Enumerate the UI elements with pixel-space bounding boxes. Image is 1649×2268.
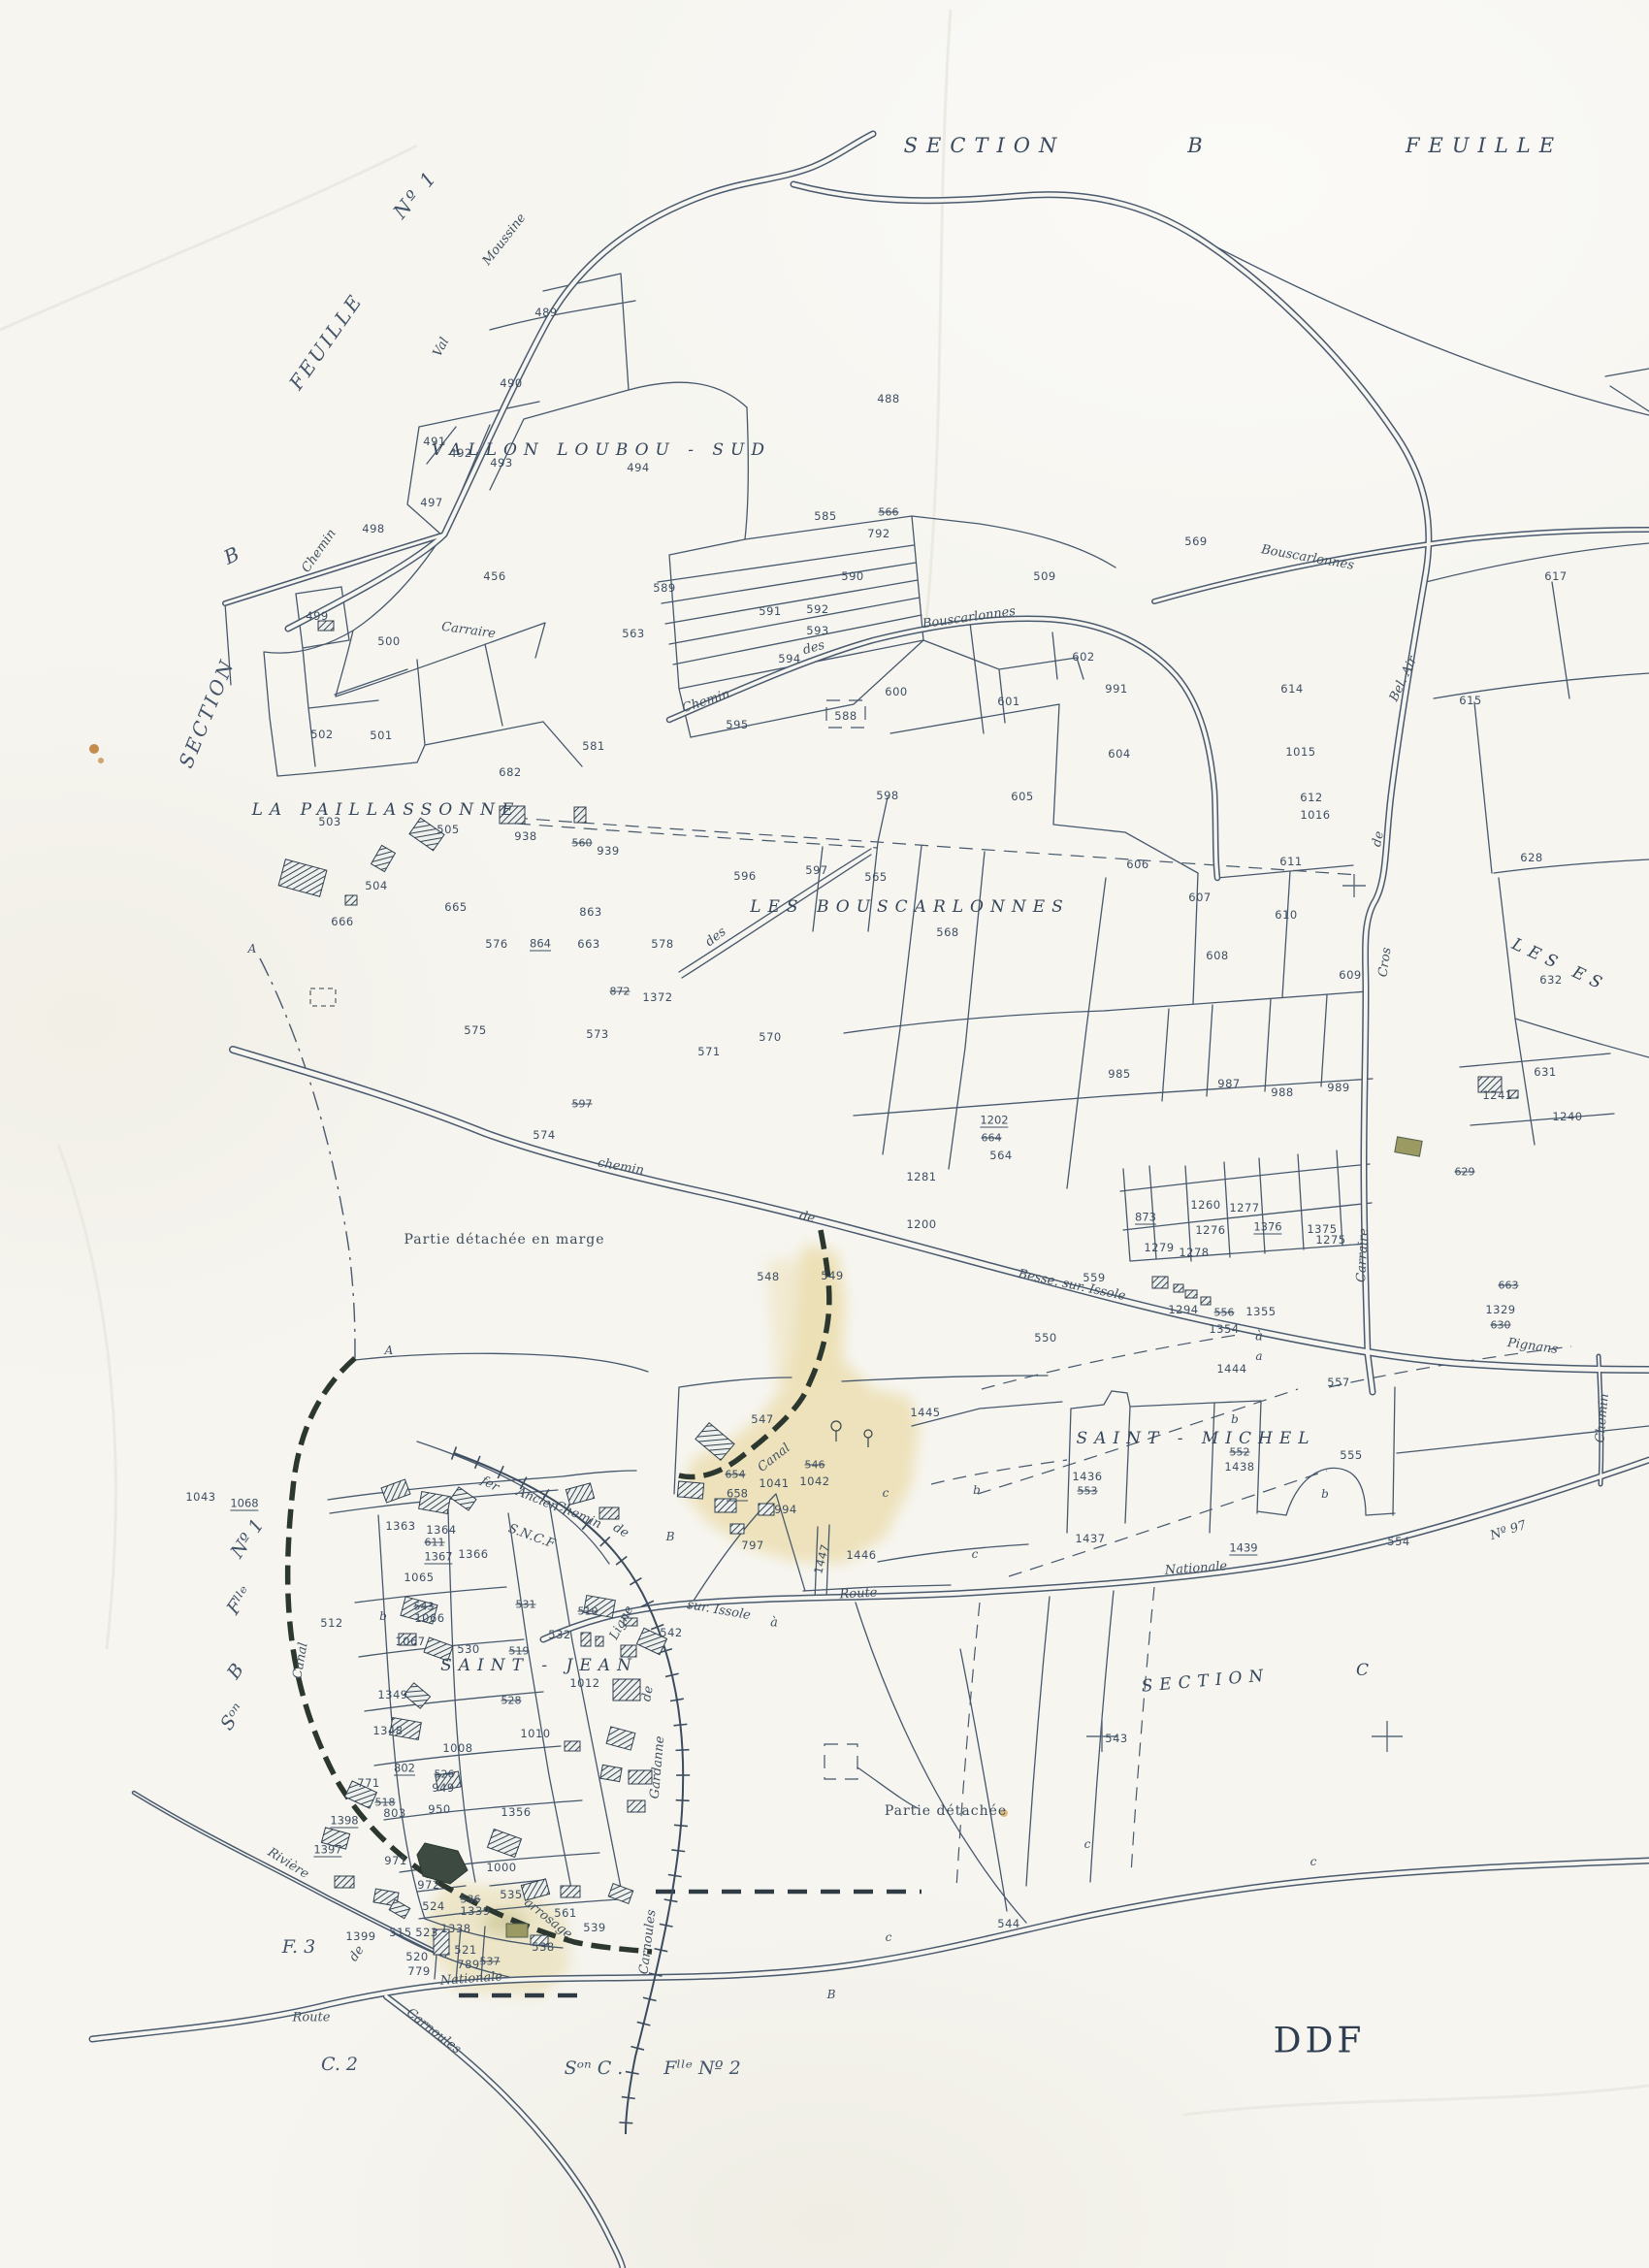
parcel-number: 509: [1033, 569, 1055, 583]
sheet-label: Nº 1: [226, 1515, 268, 1562]
parcel-number: 564: [989, 1149, 1012, 1162]
parcel-number: 792: [867, 527, 889, 540]
parcel-number: 605: [1011, 790, 1033, 803]
parcel-number: 971: [384, 1854, 406, 1867]
sheet-label: F. 3: [282, 1936, 315, 1958]
parcel-number-underlined: 802: [394, 1762, 415, 1776]
road-label: Moussine: [480, 211, 530, 269]
parcel-number: 532: [548, 1628, 570, 1641]
parcel-number: 628: [1520, 851, 1542, 864]
parcel-number: 596: [733, 869, 756, 883]
parcel-number: 554: [1387, 1535, 1409, 1548]
margin-label: B: [220, 540, 245, 568]
parcel-number: 544: [997, 1917, 1019, 1930]
margin-label: Nº 1: [388, 165, 442, 223]
margin-label: SECTION: [174, 655, 239, 771]
road-label: Chemin: [299, 527, 339, 575]
map-labels-layer: FEUILLENº 1SECTIONBSᵒⁿBFˡˡᵉNº 1F. 3C. 2S…: [0, 0, 1649, 2268]
parcel-number: 1444: [1216, 1362, 1246, 1376]
parcel-number: 592: [806, 602, 828, 616]
parcel-number: 1016: [1300, 808, 1330, 822]
parcel-number-underlined: 658: [727, 1487, 748, 1502]
parcel-number: 499: [306, 609, 328, 623]
parcel-number: 1438: [1224, 1460, 1254, 1474]
parcel-number: 1437: [1075, 1532, 1105, 1545]
road-label: Route: [839, 1585, 878, 1602]
sheet-label: Fˡˡᵉ: [222, 1582, 256, 1618]
parcel-number: 502: [310, 728, 333, 741]
parcel-number-struck: 510: [578, 1605, 598, 1618]
parcel-number: 1276: [1195, 1223, 1225, 1237]
parcel-number: 515: [389, 1926, 411, 1939]
parcel-number: 542: [660, 1626, 682, 1639]
road-label: Nº 97: [1489, 1518, 1529, 1543]
parcel-number: 609: [1339, 968, 1361, 982]
parcel-number-struck: 526: [435, 1768, 455, 1781]
parcel-number: 574: [533, 1128, 555, 1142]
road-label: Carraire: [1354, 1228, 1372, 1283]
parcel-number: 512: [320, 1616, 342, 1630]
parcel-number: 550: [1034, 1331, 1056, 1345]
sheet-label: B: [223, 1660, 248, 1683]
parcel-number-struck: 872: [610, 986, 630, 998]
parcel-number: 570: [759, 1030, 781, 1044]
parcel-number: 604: [1108, 747, 1130, 761]
parcel-number: 1200: [906, 1217, 936, 1231]
road-label: Ligne: [607, 1604, 637, 1642]
place-name: LES BOUSCARLONNES: [750, 897, 1070, 917]
road-label: de: [1370, 830, 1387, 849]
parcel-number: 1281: [906, 1170, 936, 1183]
parcel-number: 972: [417, 1878, 439, 1892]
parcel-number: 607: [1188, 891, 1211, 904]
parcel-number: 573: [586, 1027, 608, 1041]
parcel-number: 492: [449, 446, 471, 460]
parcel-number-struck: 519: [509, 1645, 530, 1658]
letter-marker: c: [1084, 1837, 1091, 1851]
letter-marker: B: [827, 1988, 836, 2001]
parcel-number: 682: [499, 765, 521, 779]
parcel-number-struck: 556: [1214, 1307, 1235, 1319]
parcel-number: 1000: [486, 1861, 516, 1874]
parcel-number: 663: [577, 937, 599, 951]
parcel-number: 594: [778, 652, 800, 665]
letter-marker: a: [1255, 1349, 1262, 1363]
road-label: Carnoules: [636, 1909, 659, 1975]
parcel-number: 597: [805, 863, 827, 877]
parcel-number-struck: 664: [982, 1132, 1002, 1145]
parcel-number: 595: [726, 718, 748, 731]
road-label: sur. Issole: [686, 1598, 752, 1623]
parcel-number: 617: [1544, 569, 1567, 583]
parcel-number: 549: [821, 1269, 843, 1282]
parcel-number: 569: [1184, 535, 1207, 548]
road-label: Val: [431, 336, 453, 360]
parcel-number: 1338: [440, 1922, 470, 1935]
parcel-number: 665: [444, 900, 467, 914]
parcel-number: 600: [885, 685, 907, 698]
parcel-number-struck: 597: [572, 1098, 593, 1111]
parcel-number-struck: 560: [572, 837, 593, 850]
parcel-number: 504: [365, 879, 387, 892]
parcel-number: 1364: [426, 1523, 456, 1537]
parcel-number-underlined: 864: [530, 937, 551, 952]
parcel-number-struck: 566: [879, 506, 899, 519]
road-label: de: [610, 1521, 630, 1541]
parcel-number: 803: [383, 1806, 405, 1820]
parcel-number-underlined: 1397: [313, 1843, 341, 1858]
sheet-label: Sᵒⁿ: [216, 1700, 249, 1734]
parcel-number: 521: [454, 1943, 476, 1957]
parcel-number: 608: [1206, 949, 1228, 962]
parcel-number: 1043: [185, 1490, 215, 1504]
road-label: Nationale: [439, 1969, 502, 1988]
parcel-number: 987: [1217, 1077, 1240, 1090]
parcel-number-underlined: 1398: [330, 1814, 358, 1829]
parcel-number: 456: [483, 569, 505, 583]
parcel-number: 1279: [1144, 1241, 1174, 1254]
parcel-number-struck: 553: [1078, 1485, 1098, 1498]
parcel-number-struck: 630: [1491, 1319, 1511, 1332]
parcel-number: 593: [806, 624, 828, 637]
parcel-number: 559: [1083, 1271, 1105, 1284]
parcel-number: 503: [318, 815, 340, 828]
road-label: fer: [478, 1474, 501, 1495]
parcel-number: 1329: [1485, 1303, 1515, 1316]
road-label: Bouscarlonnes: [1260, 542, 1355, 573]
road-label: de: [346, 1943, 367, 1964]
parcel-number-struck: 528: [501, 1695, 522, 1707]
parcel-number-underlined: 1367: [424, 1550, 452, 1565]
road-label: chemin: [597, 1155, 645, 1178]
letter-marker: b: [1231, 1412, 1239, 1426]
sheet-label: Fˡˡᵉ Nº 2: [663, 2057, 741, 2079]
road-label: Chemin: [1593, 1393, 1611, 1443]
road-label: Carnoules: [404, 2005, 464, 2057]
parcel-number: 1348: [372, 1724, 403, 1737]
road-label: Nationale: [1164, 1559, 1227, 1577]
parcel-number: 538: [532, 1940, 554, 1954]
parcel-number: 1447: [811, 1542, 832, 1575]
parcel-number: 588: [834, 709, 857, 723]
margin-label: FEUILLE: [284, 289, 368, 394]
parcel-number: 1010: [520, 1727, 550, 1740]
parcel-number: 1446: [846, 1548, 876, 1562]
parcel-number: 535: [500, 1888, 522, 1901]
parcel-number: 615: [1459, 694, 1481, 707]
letter-marker: b: [379, 1609, 387, 1623]
place-name: SAINT - MICHEL: [1076, 1429, 1315, 1448]
road-label: Canal: [290, 1641, 310, 1680]
parcel-number: 565: [864, 870, 887, 884]
parcel-number: 1041: [759, 1476, 789, 1490]
parcel-number: 1240: [1552, 1110, 1582, 1123]
parcel-number: 1067: [395, 1635, 425, 1648]
road-label: des: [801, 638, 826, 658]
parcel-number-underlined: 1202: [980, 1114, 1008, 1128]
parcel-number: 1065: [404, 1571, 434, 1584]
road-label: de: [798, 1209, 817, 1226]
parcel-number: 797: [741, 1539, 763, 1552]
parcel-number: 611: [1279, 855, 1302, 868]
sheet-label: C. 2: [321, 2054, 358, 2075]
parcel-number-struck: 654: [726, 1469, 746, 1481]
parcel-number: 571: [697, 1045, 720, 1058]
sheet-label: Sᵒⁿ C .: [565, 2057, 624, 2079]
annotation-label: Partie détachée: [885, 1803, 1007, 1819]
parcel-number-underlined: 1376: [1253, 1220, 1281, 1235]
parcel-number-struck: 611: [425, 1537, 445, 1549]
parcel-number: 578: [651, 937, 673, 951]
parcel-number: 1445: [910, 1406, 940, 1419]
parcel-number: 1015: [1285, 745, 1315, 759]
place-name: LA PAILLASSONNE: [252, 800, 521, 820]
letter-marker: A: [385, 1344, 394, 1357]
parcel-number: 547: [751, 1412, 773, 1426]
parcel-number: 1339: [460, 1904, 490, 1918]
parcel-number: 1278: [1179, 1246, 1209, 1259]
parcel-number-struck: 629: [1455, 1166, 1475, 1179]
parcel-number: 1294: [1168, 1303, 1198, 1316]
parcel-number: 779: [407, 1964, 430, 1978]
road-label: Cros: [1375, 947, 1394, 978]
parcel-number: 498: [362, 522, 384, 535]
parcel-number: 501: [370, 729, 392, 742]
parcel-number: 1356: [501, 1805, 531, 1819]
parcel-number-struck: 546: [805, 1459, 825, 1472]
parcel-number: 614: [1280, 682, 1303, 696]
parcel-number: 548: [757, 1270, 779, 1283]
parcel-number-underlined: 1068: [230, 1497, 258, 1511]
parcel-number: 1372: [642, 990, 672, 1004]
parcel-number: 489: [534, 306, 557, 319]
parcel-number: 989: [1327, 1081, 1349, 1094]
ddf-stamp: DDF: [1274, 2022, 1366, 2061]
parcel-number: 985: [1108, 1067, 1130, 1081]
parcel-number: 520: [405, 1950, 428, 1963]
parcel-number: 589: [653, 581, 675, 595]
parcel-number-underlined: 1439: [1229, 1541, 1257, 1556]
parcel-number: 601: [997, 695, 1019, 708]
parcel-number: 497: [420, 496, 442, 509]
parcel-number: 576: [485, 937, 507, 951]
parcel-number-struck: 537: [480, 1956, 501, 1968]
parcel-number: 949: [432, 1781, 454, 1795]
parcel-number: 863: [579, 905, 601, 919]
parcel-number-underlined: 873: [1135, 1211, 1156, 1225]
parcel-number: 555: [1340, 1448, 1362, 1462]
parcel-number: 1012: [569, 1676, 599, 1690]
parcel-number: 1349: [377, 1688, 407, 1701]
parcel-number: 1277: [1229, 1201, 1259, 1215]
parcel-number: 493: [490, 456, 512, 470]
road-label: Rivière: [265, 1845, 311, 1882]
annotation-label: Partie détachée en marge: [404, 1232, 604, 1247]
parcel-number: 1363: [385, 1519, 415, 1533]
parcel-number: 561: [554, 1906, 576, 1920]
parcel-number: 568: [936, 925, 958, 939]
parcel-number: 991: [1105, 682, 1127, 696]
parcel-number: 539: [583, 1921, 605, 1934]
parcel-number: 581: [582, 739, 604, 753]
road-label: à: [770, 1616, 778, 1631]
parcel-number: 602: [1072, 650, 1094, 664]
parcel-number: 631: [1534, 1065, 1556, 1079]
road-label: Chemin: [553, 1499, 604, 1532]
parcel-number: 598: [876, 789, 898, 802]
parcel-number: 994: [774, 1503, 796, 1516]
parcel-number: 488: [877, 392, 899, 405]
parcel-number-struck: 552: [1230, 1446, 1250, 1459]
parcel-number: 575: [464, 1023, 486, 1037]
parcel-number: 494: [627, 461, 649, 474]
parcel-number: 938: [514, 829, 536, 843]
road-label: Bel. Air: [1387, 654, 1420, 703]
parcel-number: 491: [423, 435, 445, 448]
road-label: S.N.C.F: [506, 1521, 557, 1551]
road-label: de: [639, 1685, 657, 1702]
road-label: Carraire: [440, 620, 496, 642]
parcel-number-struck: 663: [1499, 1280, 1519, 1292]
letter-marker: b: [1321, 1487, 1329, 1501]
letter-marker: b: [973, 1483, 981, 1497]
parcel-number: 1042: [799, 1474, 829, 1488]
parcel-number-struck: 531: [516, 1599, 536, 1611]
parcel-number: 500: [377, 634, 400, 648]
parcel-number: 1275: [1315, 1233, 1345, 1247]
road-label: Chemin: [680, 687, 731, 716]
place-name: C: [1356, 1661, 1375, 1680]
place-name: VALLON LOUBOU - SUD: [432, 440, 771, 460]
parcel-number: 524: [422, 1899, 444, 1913]
parcel-number: 591: [759, 604, 781, 618]
parcel-number: 1008: [442, 1741, 472, 1755]
parcel-number: 666: [331, 915, 353, 928]
parcel-number: 610: [1275, 908, 1297, 922]
parcel-number: 606: [1126, 858, 1148, 871]
parcel-number: 939: [597, 844, 619, 858]
road-label: Route: [293, 2011, 331, 2025]
cadastral-map-sheet: SECTION B FEUILLE: [0, 0, 1649, 2268]
letter-marker: A: [248, 942, 257, 956]
parcel-number: 1355: [1245, 1305, 1276, 1318]
parcel-number: 543: [1105, 1732, 1127, 1745]
place-name: SECTION: [1141, 1666, 1271, 1697]
road-label: Bouscarlonnes: [921, 604, 1017, 632]
place-name: LES ES: [1508, 934, 1610, 995]
parcel-number: 612: [1300, 791, 1322, 804]
parcel-number: 585: [814, 509, 836, 523]
road-label: Gardanne: [648, 1735, 668, 1799]
parcel-number: 590: [841, 569, 863, 583]
parcel-number: 523: [415, 1926, 437, 1939]
parcel-number: 1241: [1482, 1088, 1512, 1102]
road-label: Pignans: [1506, 1336, 1559, 1357]
parcel-number: 1066: [414, 1611, 444, 1625]
road-label: à: [1255, 1330, 1263, 1345]
parcel-number: 530: [457, 1642, 479, 1656]
parcel-number: 950: [428, 1802, 450, 1816]
parcel-number: 632: [1539, 973, 1562, 987]
parcel-number: 557: [1327, 1376, 1349, 1389]
parcel-number: 771: [357, 1776, 379, 1790]
letter-marker: c: [1310, 1855, 1317, 1868]
letter-marker: c: [883, 1486, 889, 1500]
parcel-number: 490: [500, 376, 522, 390]
parcel-number: 1366: [458, 1547, 488, 1561]
parcel-number: 1260: [1190, 1198, 1220, 1212]
place-name: SAINT - JEAN: [440, 1656, 638, 1675]
parcel-number: 1399: [345, 1929, 375, 1943]
parcel-number: 505: [436, 823, 459, 836]
road-label: Besse. sur. Issole: [1017, 1267, 1126, 1304]
parcel-number: 563: [622, 627, 644, 640]
parcel-number: 789: [457, 1958, 479, 1971]
letter-marker: c: [972, 1547, 979, 1561]
parcel-number: 1436: [1072, 1470, 1102, 1483]
letter-marker: c: [886, 1930, 892, 1944]
road-label: Canal: [755, 1441, 792, 1474]
road-label: des: [702, 924, 728, 950]
parcel-number: 988: [1271, 1085, 1293, 1099]
letter-marker: B: [666, 1530, 675, 1543]
parcel-number: 1354: [1209, 1322, 1239, 1336]
